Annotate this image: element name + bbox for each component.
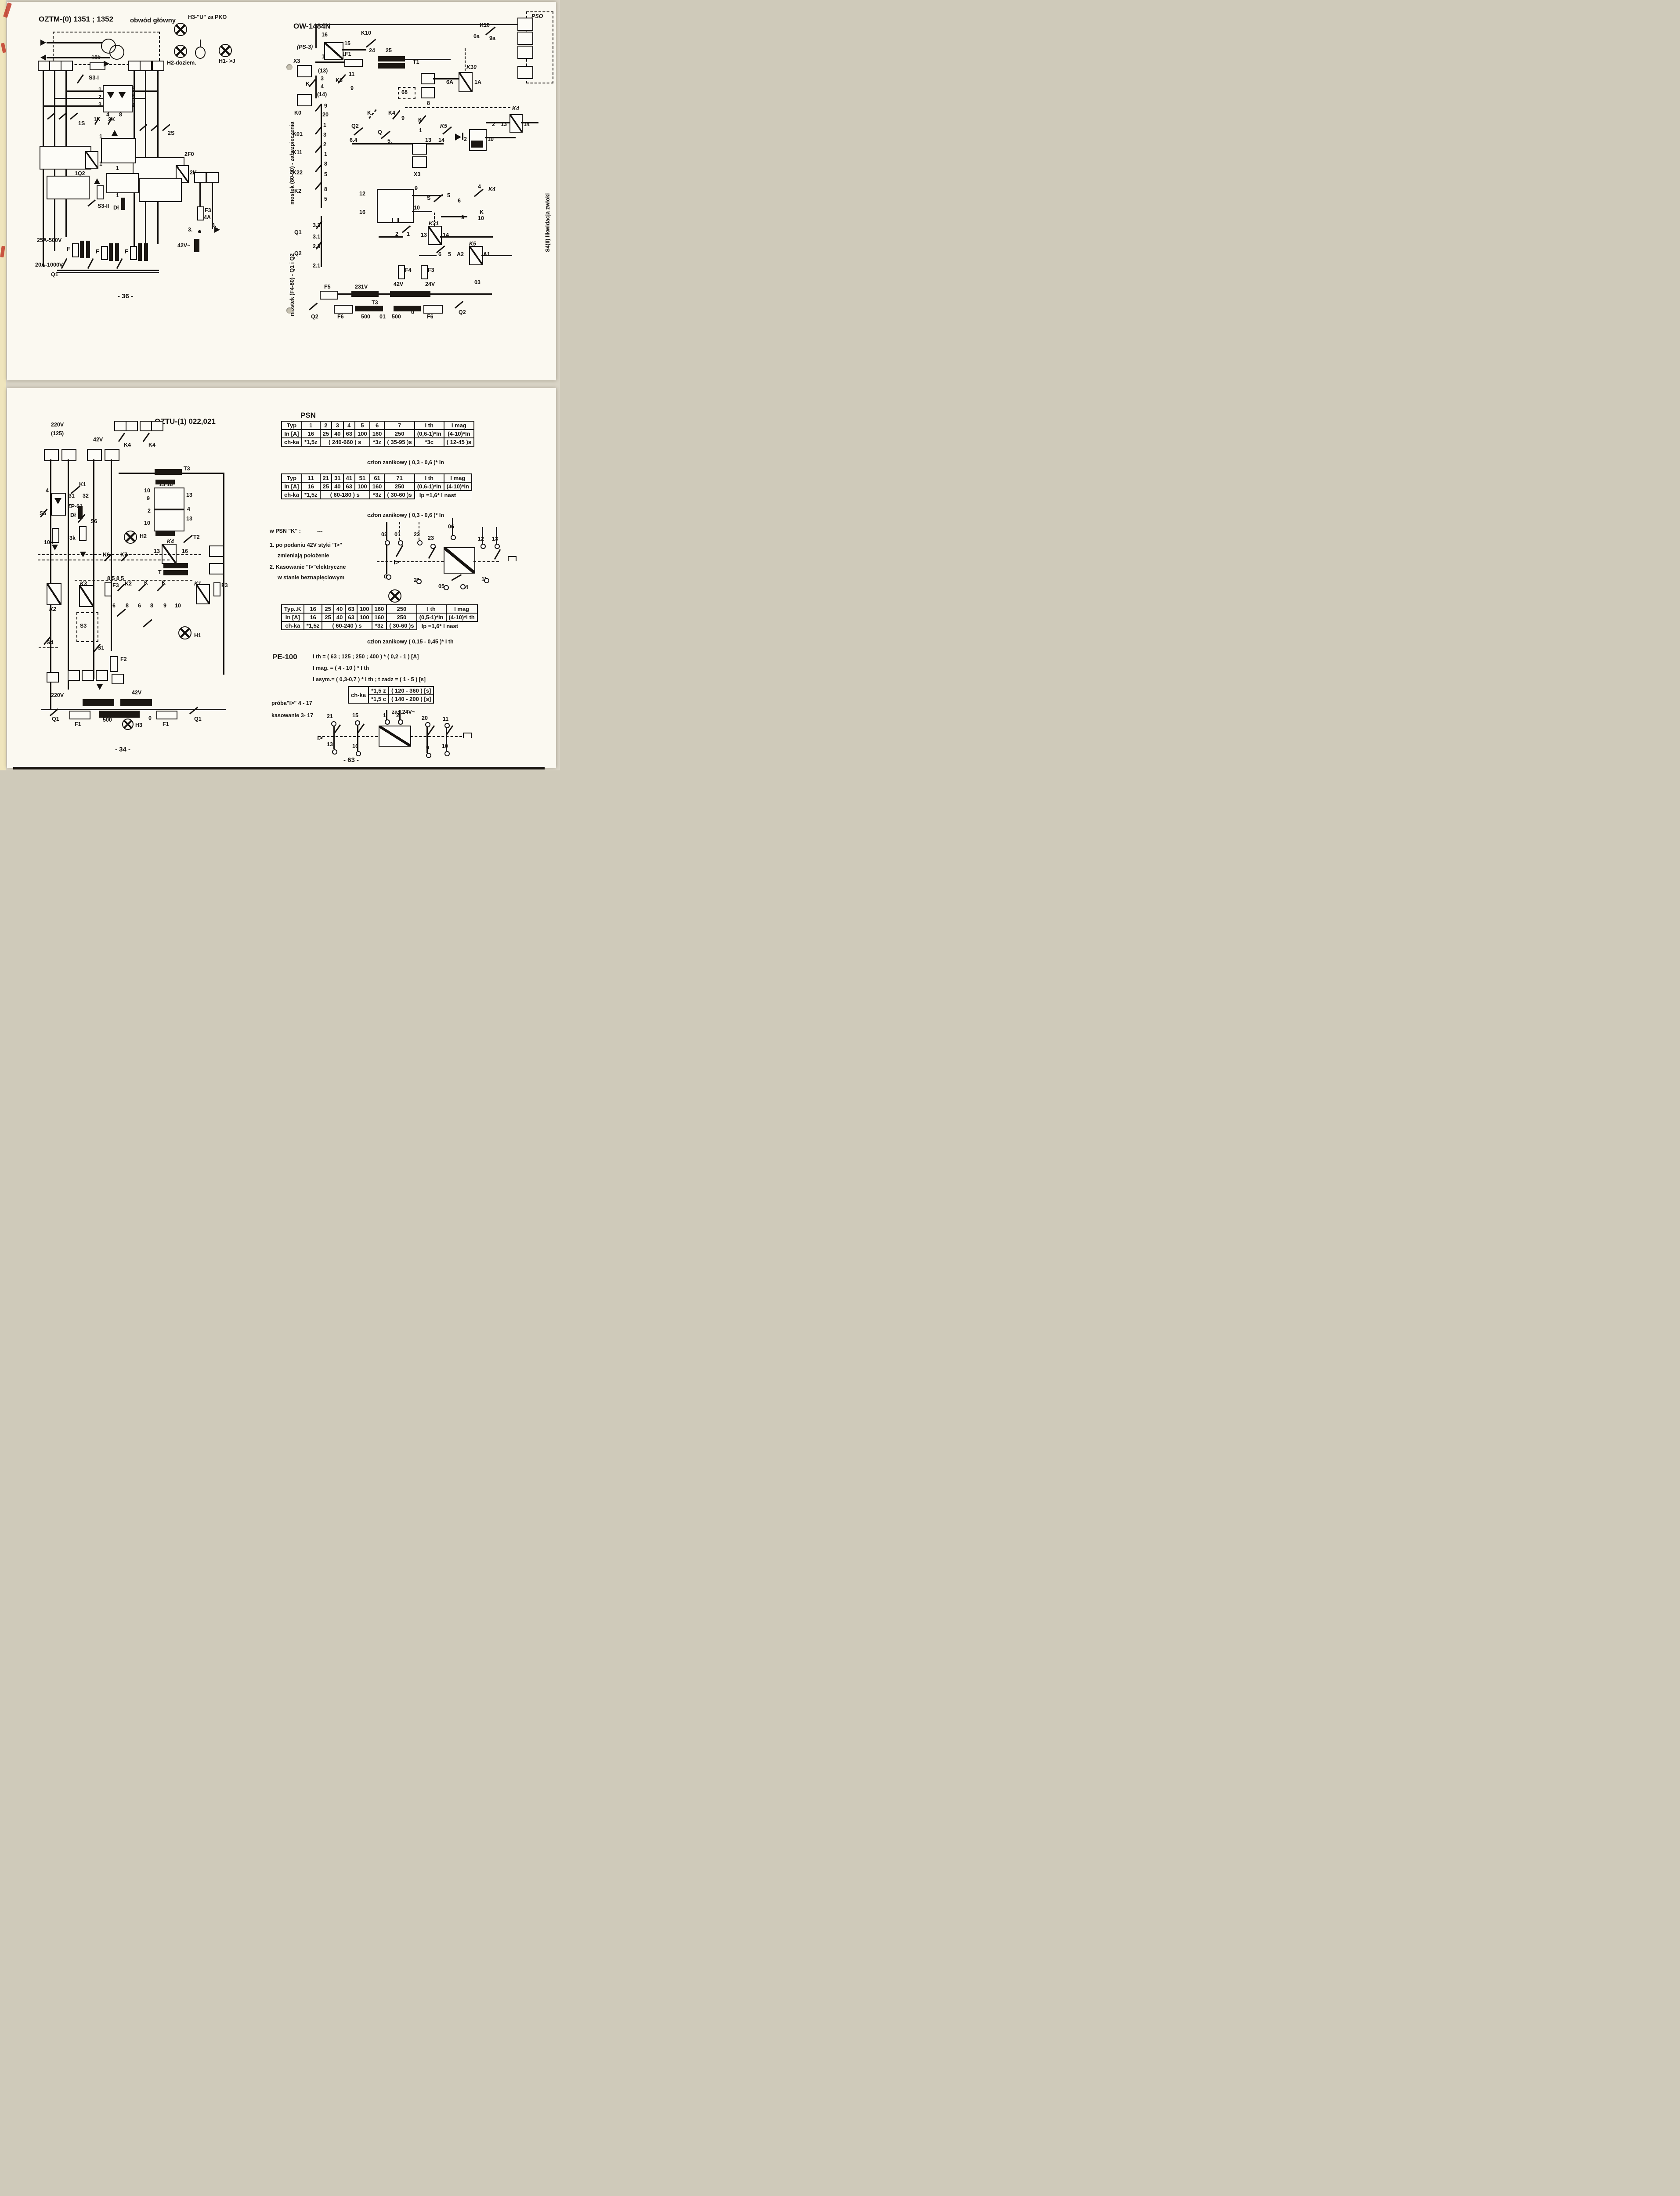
- punch-hole: [286, 307, 293, 314]
- punch-hole: [286, 64, 293, 70]
- scanned-schematic-document: OZTM-(0) 1351 ; 1352obwód głównyH3-"U" z…: [0, 0, 560, 770]
- red-scan-mark: [0, 246, 5, 258]
- red-scan-mark: [3, 2, 12, 18]
- scan-artifacts: [0, 0, 560, 770]
- winding-symbol: [13, 767, 545, 769]
- red-scan-mark: [1, 43, 6, 53]
